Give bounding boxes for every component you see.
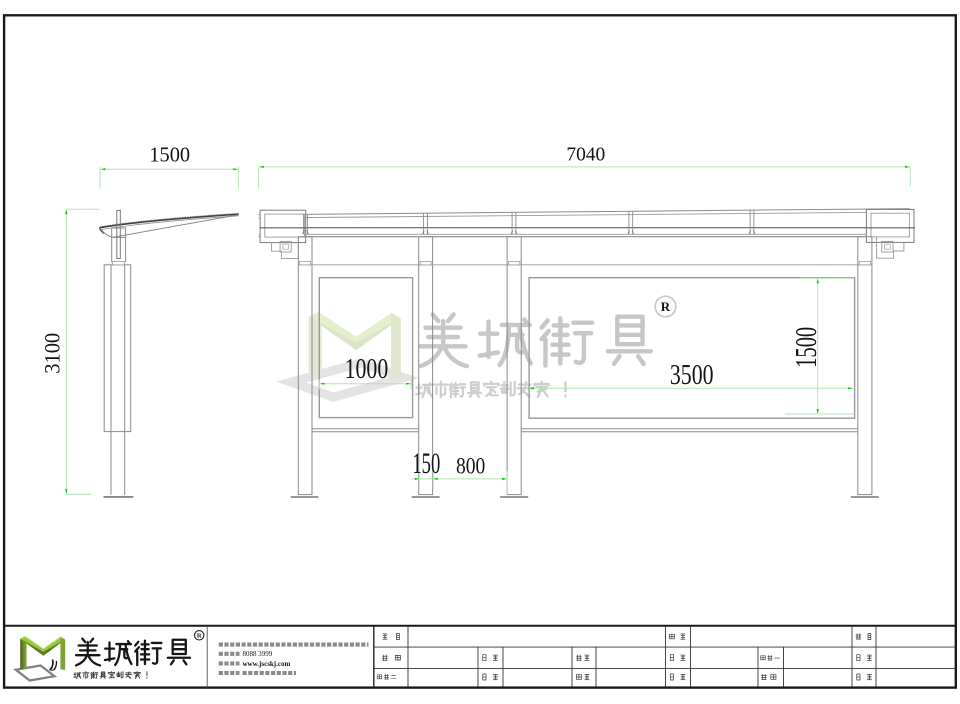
- svg-text:8088 3999: 8088 3999: [243, 650, 273, 658]
- svg-text:1000: 1000: [345, 354, 389, 384]
- svg-text:1500: 1500: [149, 144, 190, 166]
- svg-text:7040: 7040: [566, 143, 605, 166]
- svg-text:www.jscskj.com: www.jscskj.com: [243, 660, 291, 668]
- svg-text:3100: 3100: [40, 333, 65, 374]
- svg-text:3500: 3500: [670, 360, 714, 390]
- svg-text:R: R: [197, 633, 202, 640]
- svg-text:1500: 1500: [789, 327, 823, 368]
- svg-text:R: R: [661, 299, 671, 314]
- svg-text:800: 800: [456, 453, 485, 479]
- svg-text:150: 150: [412, 448, 440, 480]
